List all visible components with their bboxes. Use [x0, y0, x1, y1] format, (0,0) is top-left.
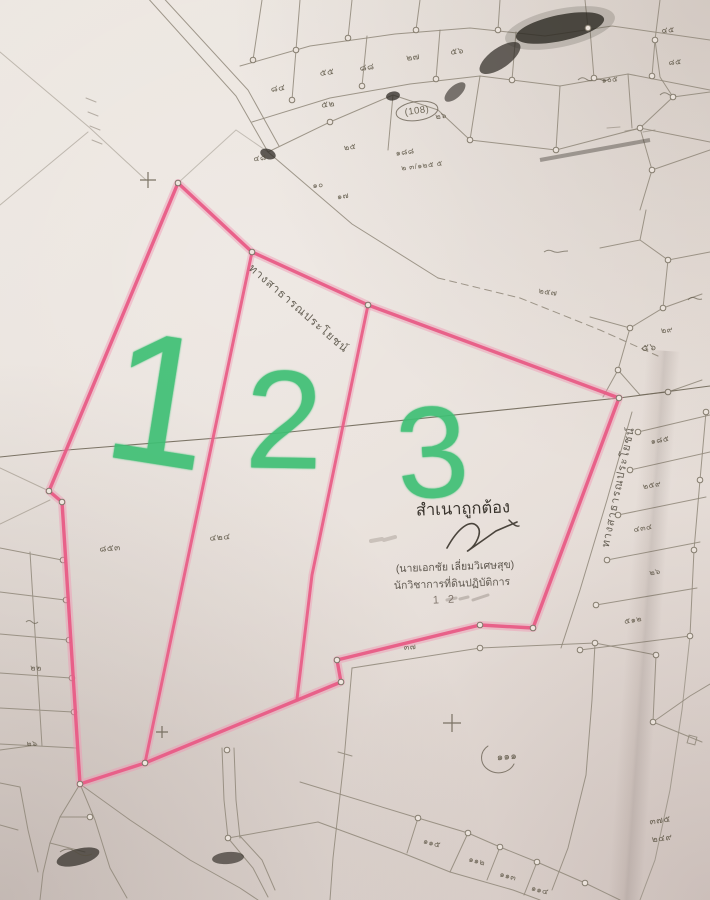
certification-title: สำเนาถูกต้อง: [388, 493, 539, 524]
stamp-fragment: [371, 537, 395, 541]
cadastral-map-photo: ๘๔๕๕๘๘๒๗๕๖๕๒๔๘๒๕๑๘๘๒ ๓/๑๒๕ ๕๑๐๑๗(108)๒๖๔…: [0, 0, 710, 900]
signature-squiggle: [447, 522, 517, 551]
green-plot-number-2: 2: [244, 349, 324, 490]
